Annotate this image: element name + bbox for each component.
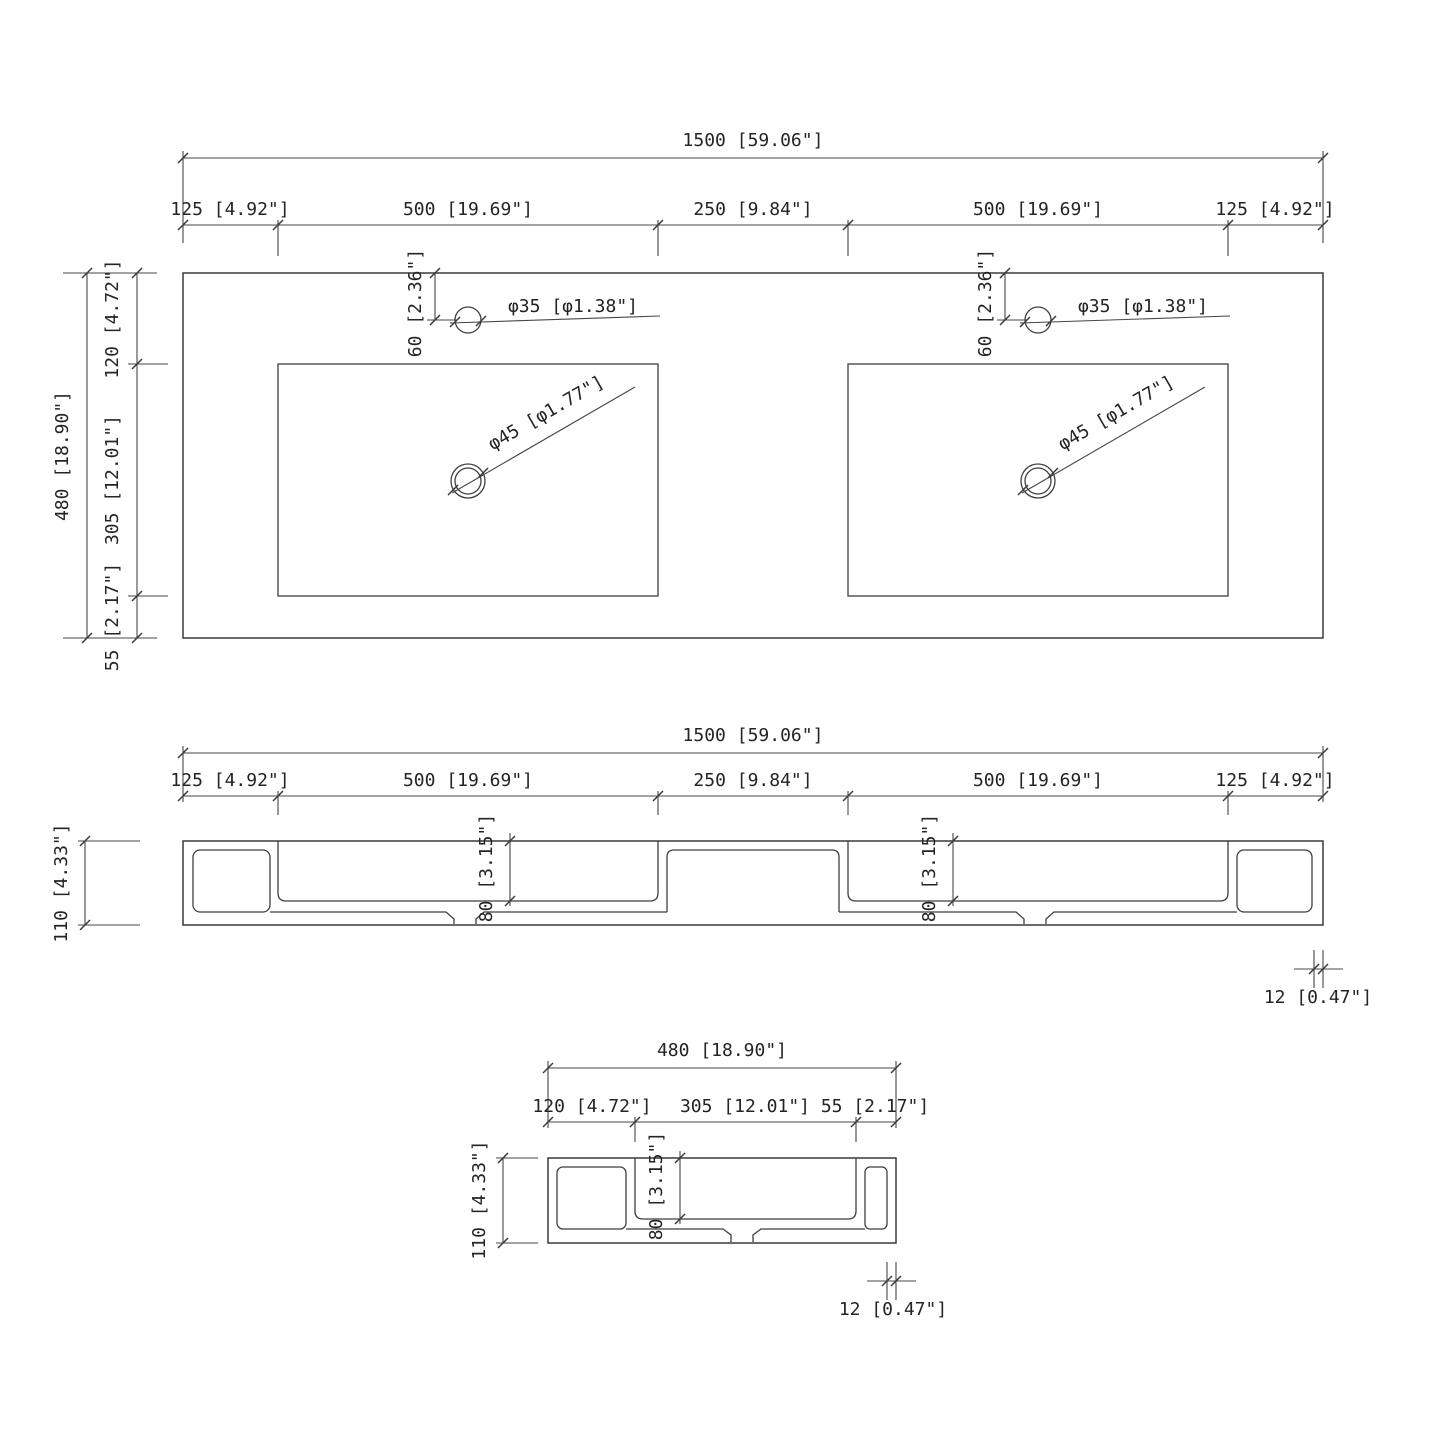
dim-plan-depth-total: 480 [18.90"]: [52, 391, 73, 521]
faucet-hole-right: [1025, 307, 1051, 333]
basin-left-outline: [278, 364, 658, 596]
dim-front-width-total: 1500 [59.06"]: [683, 725, 824, 746]
plan-drain-dia-left-callout: φ45 [φ1.77"]: [448, 372, 635, 495]
dim-side-depth-total: 480 [18.90"]: [657, 1040, 787, 1061]
drain-hole-right-outer: [1021, 464, 1055, 498]
dim-side-seg-1: 120 [4.72"]: [532, 1096, 651, 1117]
front-center-block: [667, 850, 839, 912]
front-left-cavity: [193, 850, 270, 912]
front-floor-right-with-drain: [839, 912, 1237, 924]
plan-drain-dia-right-callout: φ45 [φ1.77"]: [1018, 372, 1205, 495]
front-basin-depth-left-dim: 80 [3.15"]: [476, 814, 515, 922]
side-wall-thickness-dim: 12 [0.47"]: [839, 1262, 947, 1320]
plan-faucet-dia-right-callout: φ35 [φ1.38"]: [1020, 296, 1230, 327]
plan-depth-segments-dim: 120 [4.72"] 305 [12.01"] 55 [2.17"]: [102, 259, 168, 671]
dim-front-seg-3: 250 [9.84"]: [693, 770, 812, 791]
plan-faucet-offset-left-dim: 60 [2.36"]: [405, 249, 457, 357]
drain-hole-right-inner: [1025, 468, 1051, 494]
basin-right-outline: [848, 364, 1228, 596]
dim-side-height: 110 [4.33"]: [469, 1140, 490, 1259]
dim-front-height: 110 [4.33"]: [51, 823, 72, 942]
front-view: 1500 [59.06"] 125 [4.92"] 500 [19.69"] 2…: [51, 725, 1372, 1008]
plan-overall-width-dim: 1500 [59.06"]: [178, 130, 1328, 243]
side-back-slot: [865, 1167, 887, 1229]
dim-front-seg-2: 500 [19.69"]: [403, 770, 533, 791]
faucet-hole-left: [455, 307, 481, 333]
top-view: 1500 [59.06"] 125 [4.92"] 500 [19.69"] 2…: [52, 130, 1335, 671]
side-view: 480 [18.90"] 120 [4.72"] 305 [12.01"] 55…: [469, 1040, 947, 1320]
dim-plan-depth-seg-2: 305 [12.01"]: [102, 415, 123, 545]
label-faucet-dia-left: φ35 [φ1.38"]: [508, 296, 638, 317]
front-basin-right: [848, 841, 1228, 901]
front-height-dim: 110 [4.33"]: [51, 823, 140, 942]
label-faucet-dia-right: φ35 [φ1.38"]: [1078, 296, 1208, 317]
countertop-outline: [183, 273, 1323, 638]
dim-plan-depth-seg-3: 55 [2.17"]: [102, 563, 123, 671]
dim-front-basin-depth-right: 80 [3.15"]: [919, 814, 940, 922]
front-basin-left: [278, 841, 658, 901]
front-basin-depth-right-dim: 80 [3.15"]: [919, 814, 958, 922]
dim-front-basin-depth-left: 80 [3.15"]: [476, 814, 497, 922]
side-depth-segments-dim: 120 [4.72"] 305 [12.01"] 55 [2.17"]: [532, 1096, 929, 1142]
front-wall-thickness-dim: 12 [0.47"]: [1264, 950, 1372, 1008]
dim-side-seg-2: 305 [12.01"]: [680, 1096, 810, 1117]
side-basin-depth-dim: 80 [3.15"]: [646, 1132, 685, 1240]
front-floor-left-with-drain: [270, 912, 667, 924]
dim-plan-seg-5: 125 [4.92"]: [1215, 199, 1334, 220]
side-basin: [635, 1158, 856, 1219]
front-width-segments-dim: 125 [4.92"] 500 [19.69"] 250 [9.84"] 500…: [170, 770, 1334, 815]
drain-hole-left-outer: [451, 464, 485, 498]
side-height-dim: 110 [4.33"]: [469, 1140, 538, 1259]
front-right-cavity: [1237, 850, 1312, 912]
dim-plan-width-total: 1500 [59.06"]: [683, 130, 824, 151]
plan-width-segments-dim: 125 [4.92"] 500 [19.69"] 250 [9.84"] 500…: [170, 199, 1334, 256]
dim-front-seg-1: 125 [4.92"]: [170, 770, 289, 791]
dim-plan-seg-4: 500 [19.69"]: [973, 199, 1103, 220]
dim-plan-faucet-offset-left: 60 [2.36"]: [405, 249, 426, 357]
dim-plan-seg-2: 500 [19.69"]: [403, 199, 533, 220]
dim-plan-depth-seg-1: 120 [4.72"]: [102, 259, 123, 378]
dim-side-seg-3: 55 [2.17"]: [821, 1096, 929, 1117]
sink-technical-drawing: 1500 [59.06"] 125 [4.92"] 500 [19.69"] 2…: [0, 0, 1445, 1445]
dim-front-seg-4: 500 [19.69"]: [973, 770, 1103, 791]
plan-faucet-dia-left-callout: φ35 [φ1.38"]: [450, 296, 660, 327]
dim-front-thickness: 12 [0.47"]: [1264, 987, 1372, 1008]
side-outline: [548, 1158, 896, 1243]
plan-faucet-offset-right-dim: 60 [2.36"]: [975, 249, 1027, 357]
dim-plan-faucet-offset-right: 60 [2.36"]: [975, 249, 996, 357]
dim-side-basin-depth: 80 [3.15"]: [646, 1132, 667, 1240]
drain-hole-left-inner: [455, 468, 481, 494]
dim-front-seg-5: 125 [4.92"]: [1215, 770, 1334, 791]
dim-plan-seg-3: 250 [9.84"]: [693, 199, 812, 220]
side-front-cavity: [557, 1167, 626, 1229]
dim-plan-seg-1: 125 [4.92"]: [170, 199, 289, 220]
dim-side-thickness: 12 [0.47"]: [839, 1299, 947, 1320]
